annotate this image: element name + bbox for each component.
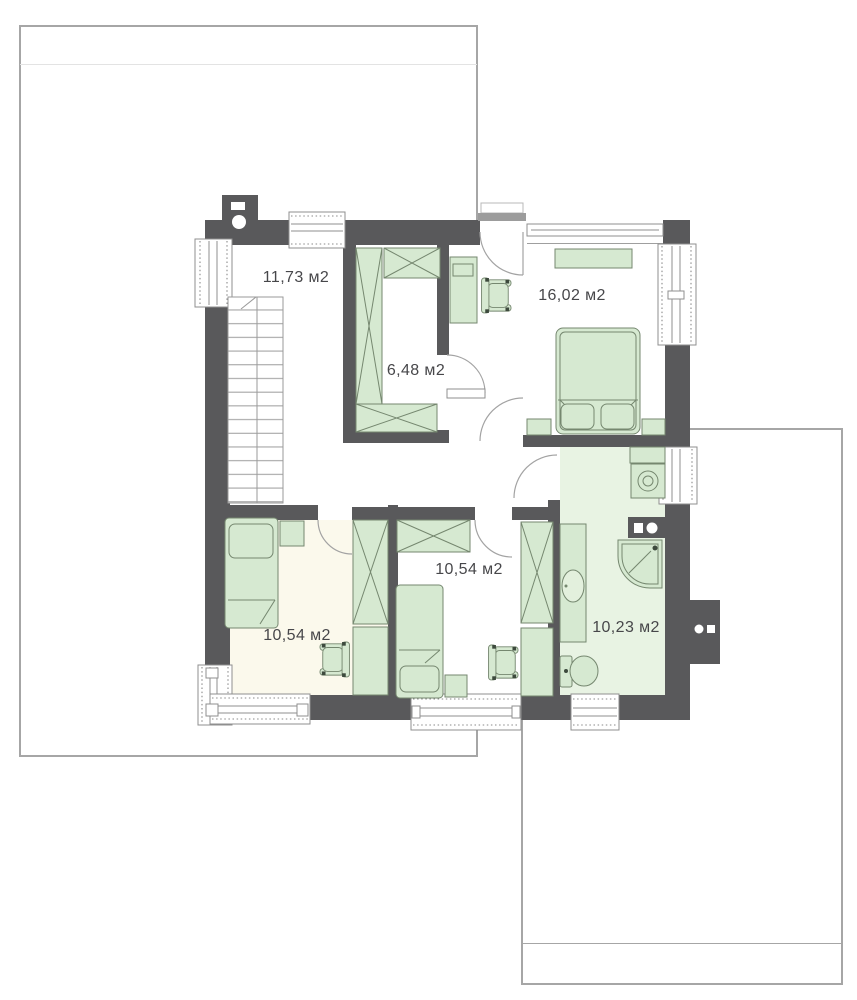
counter-icon (630, 447, 665, 463)
office-chair-icon (482, 278, 511, 313)
wall-bottom-b (521, 695, 571, 720)
floor-plan-page: 11,73 м2 6,48 м2 16,02 м2 10,54 м2 10,54… (0, 0, 857, 1000)
double-bed-icon (556, 328, 640, 434)
wall-bedroom-large-bottom (523, 435, 665, 447)
entry-threshold (478, 203, 526, 221)
toilet-icon (560, 656, 598, 687)
desk-icon (353, 627, 388, 695)
room-label-bedroom-bottom-middle: 10,54 м2 (435, 561, 503, 579)
office-chair-icon (320, 642, 349, 677)
wardrobe-icon (521, 522, 553, 623)
pillow-icon (561, 404, 594, 429)
washing-machine-icon (631, 464, 665, 498)
window-bottom-middle (411, 694, 521, 730)
window-bottom-bathroom (571, 694, 619, 730)
shelf-icon (555, 249, 632, 268)
wardrobe-icon (397, 520, 470, 552)
wall-bottom-a (308, 695, 411, 720)
window-corner-horizontal (206, 694, 310, 724)
washbasin-icon (560, 524, 586, 642)
nightstand-icon (642, 419, 665, 435)
window-left-hall (195, 239, 232, 307)
chimney-exterior-right (690, 600, 720, 664)
wardrobe-icon (353, 520, 388, 624)
single-bed-icon (225, 518, 278, 628)
nightstand-icon (445, 675, 467, 697)
wall-closet-left (343, 245, 356, 443)
room-label-bedroom-bottom-left: 10,54 м2 (263, 627, 331, 645)
room-label-hall: 11,73 м2 (263, 269, 329, 287)
office-chair-icon (489, 645, 518, 680)
room-label-closet: 6,48 м2 (387, 362, 445, 380)
wall-bedrooms-top (352, 507, 475, 520)
chimney-interior (628, 517, 665, 538)
wall-bottom-c (619, 695, 690, 720)
desk-icon (450, 257, 477, 323)
desk-icon (521, 628, 553, 696)
room-label-bathroom: 10,23 м2 (592, 619, 660, 637)
wall-bedroom-middle-top-stub (512, 507, 552, 520)
single-bed-icon (396, 585, 443, 698)
nightstand-icon (527, 419, 551, 435)
pillow-icon (601, 404, 634, 429)
pillow-icon (400, 666, 439, 692)
wardrobe-icon (384, 248, 440, 278)
wardrobe-icon (356, 248, 382, 404)
floor-plan-svg (0, 0, 857, 1000)
wardrobe-icon (356, 404, 437, 432)
nightstand-icon (280, 521, 304, 546)
window-top-hall (289, 212, 345, 248)
pillow-icon (229, 524, 273, 558)
room-label-bedroom-top-right: 16,02 м2 (538, 287, 606, 305)
window-right-bedroom (658, 244, 696, 345)
stairs-icon (228, 297, 283, 503)
